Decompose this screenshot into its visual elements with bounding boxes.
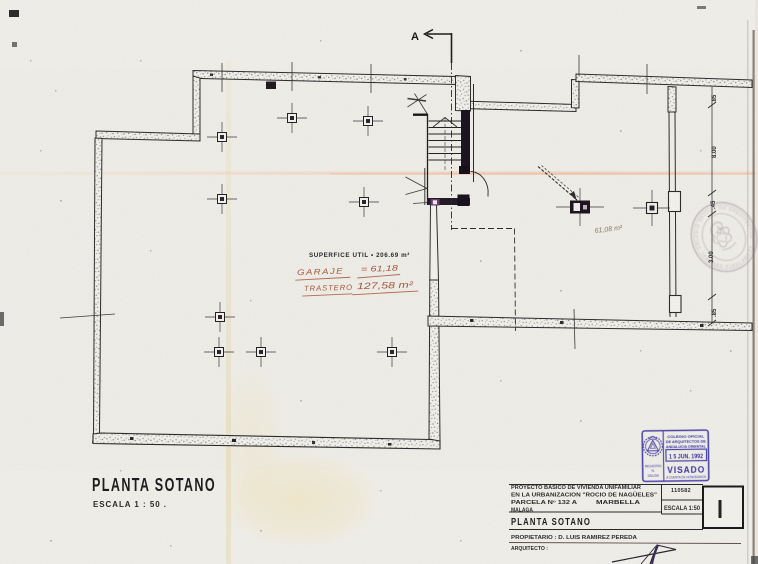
svg-text:PROPIETARIO : D. LUIS RAMIR: PROPIETARIO : D. LUIS RAMIREZ PEREDA [511, 535, 637, 541]
svg-text:.85: .85 [712, 94, 718, 103]
svg-text:PLANTA SOTANO: PLANTA SOTANO [92, 475, 216, 495]
svg-text:GARAJE: GARAJE [297, 266, 344, 277]
svg-text:SUPERFICE UTIL • 206.69 m²: SUPERFICE UTIL • 206.69 m² [309, 252, 410, 259]
svg-text:127,58 m²: 127,58 m² [357, 280, 415, 291]
svg-text:A CUENTA DE HONORARIOS: A CUENTA DE HONORARIOS [666, 475, 706, 480]
svg-text:ESCALA 1:50: ESCALA 1:50 [664, 505, 700, 512]
svg-text:8.00: 8.00 [712, 146, 718, 158]
svg-text:EN LA URBANIZACION "ROCI: EN LA URBANIZACION "ROCIO DE NAGÜELES" [511, 492, 658, 499]
svg-text:PLANTA SOTANO: PLANTA SOTANO [511, 516, 591, 528]
svg-text:= 61,18: = 61,18 [361, 264, 399, 274]
svg-text:REGISTRO: REGISTRO [645, 464, 662, 468]
svg-text:PROYECTO BASICO DE VIVIENDA: PROYECTO BASICO DE VIVIENDA UNIFAMILIAR [511, 485, 641, 491]
svg-text:PARCELA Nº 132 A: PARCELA Nº 132 A [511, 500, 578, 506]
svg-text:MARBELLA: MARBELLA [596, 500, 641, 506]
svg-text:.85: .85 [712, 308, 718, 317]
svg-text:SALIDA: SALIDA [648, 474, 660, 478]
svg-text:110582: 110582 [671, 488, 691, 494]
svg-text:TRASTERO: TRASTERO [304, 283, 353, 293]
svg-text:ANDALUCIA ORIENTAL: ANDALUCIA ORIENTAL [666, 444, 707, 450]
svg-text:ESCALA 1 : 50 .: ESCALA 1 : 50 . [93, 500, 167, 509]
svg-text:1 5 JUN. 1992: 1 5 JUN. 1992 [669, 453, 703, 460]
svg-text:MALAGA: MALAGA [511, 508, 533, 514]
svg-text:ARQUITECTO :: ARQUITECTO : [511, 546, 548, 552]
svg-text:N.: N. [652, 469, 655, 473]
svg-text:A: A [411, 31, 419, 43]
